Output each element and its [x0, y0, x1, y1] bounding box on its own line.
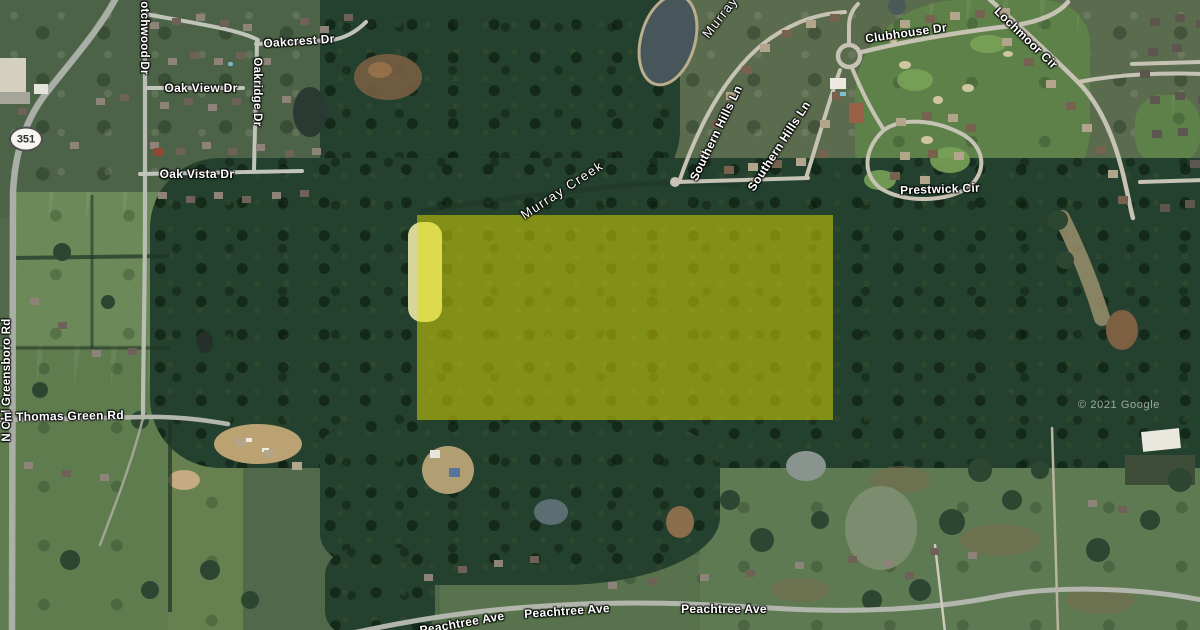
golf-greens — [864, 35, 1013, 190]
parcel-highlight-overlay[interactable] — [417, 215, 833, 420]
route-shield-label: 351 — [17, 133, 35, 145]
route-shield-351: 351 — [9, 127, 43, 152]
map-attribution: © 2021 Google — [1078, 399, 1160, 411]
satellite-map-canvas[interactable]: 351 otchwood Dr Oakcrest Dr Oak View Dr … — [0, 0, 1200, 630]
